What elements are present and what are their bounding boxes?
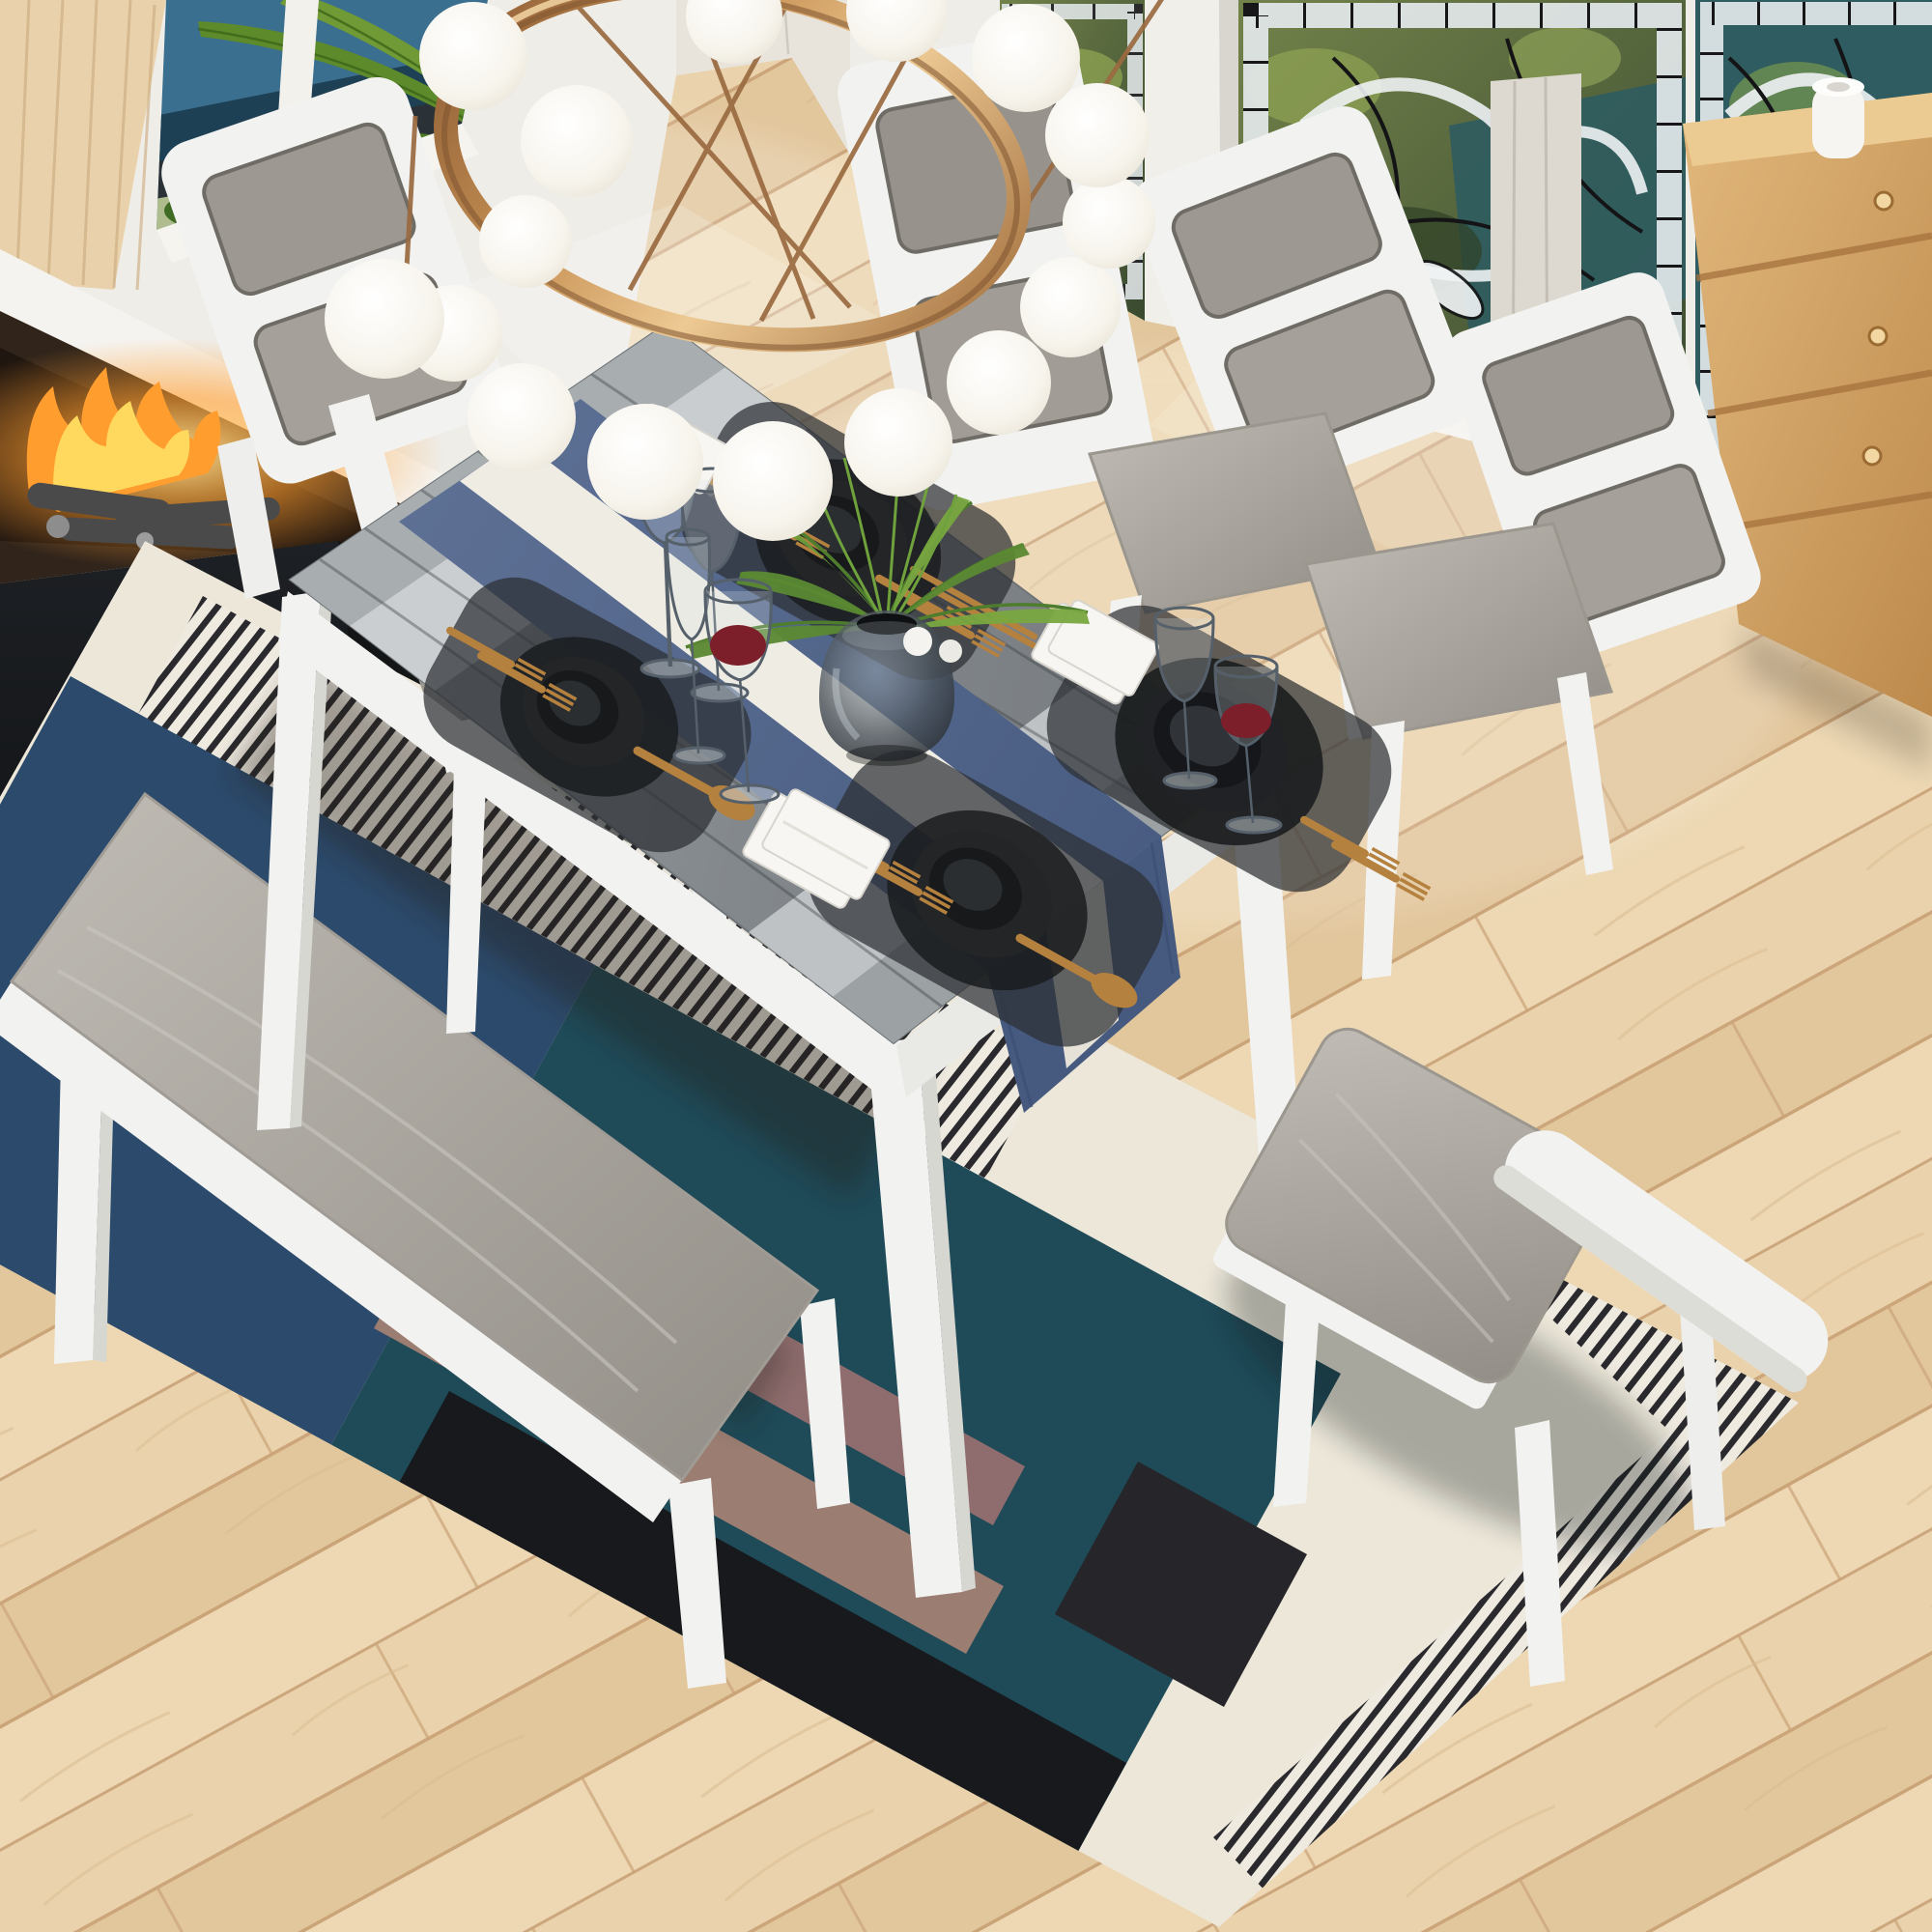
globe [587, 404, 703, 520]
globe [713, 421, 833, 541]
globe [468, 363, 576, 471]
globe [1020, 257, 1121, 357]
scene-canvas [0, 0, 1932, 1932]
knob-1 [1875, 192, 1892, 210]
red-wine-1 [710, 625, 766, 666]
globe [972, 4, 1080, 112]
knob-3 [1863, 447, 1881, 465]
vase-base-shadow [846, 745, 927, 766]
globe [479, 195, 572, 288]
decor-sphere-2 [939, 639, 962, 663]
globe [844, 388, 952, 497]
white-jar [1812, 77, 1864, 158]
dining-room-scene [0, 0, 1932, 1932]
globe [419, 2, 527, 110]
jar-lid-inner [1827, 82, 1850, 92]
red-wine-2 [1221, 703, 1271, 738]
knob-2 [1869, 327, 1887, 345]
globe [521, 85, 633, 197]
globe [947, 330, 1051, 435]
globe [325, 259, 444, 379]
globe [1063, 176, 1155, 269]
decor-sphere-1 [903, 627, 932, 656]
